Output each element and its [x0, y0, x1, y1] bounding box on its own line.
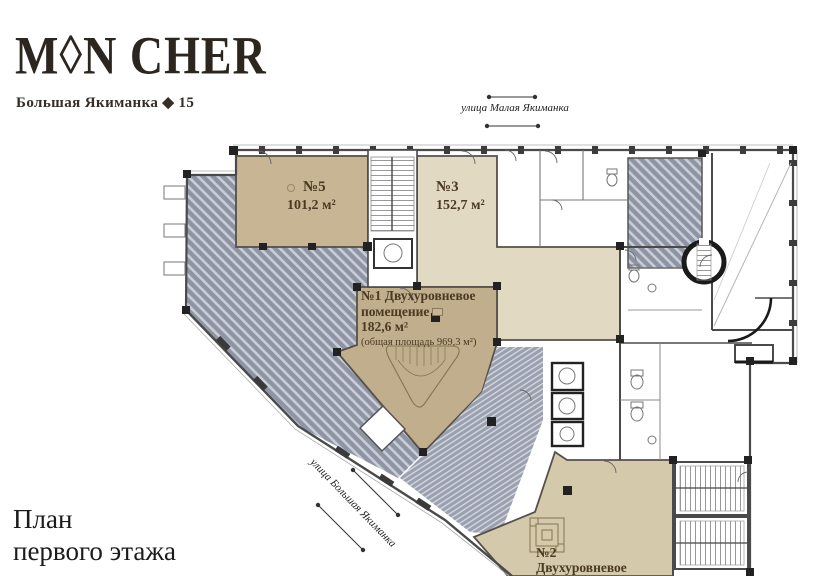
unit3-label: №3 152,7 м² [436, 177, 485, 215]
brand-logo: M◊N CHER [15, 24, 267, 87]
street-label-malaya-yakimanka: улица Малая Якиманка [430, 102, 600, 114]
brand-address: Большая Якиманка ◆ 15 [16, 93, 194, 112]
unit5-marker-icon [287, 184, 295, 192]
unit1-legend-icon [432, 308, 443, 316]
unit2-label: №2 Двухуровневое [536, 545, 627, 575]
page-title: План первого этажа [13, 503, 176, 568]
floor-plan-page: M◊N CHER Большая Якиманка ◆ 15 улица Мал… [0, 0, 820, 576]
unit1-label: №1 Двухуровневое помещение 182,6 м² (общ… [361, 288, 476, 350]
plan-zones [186, 156, 702, 576]
unit5-label: №5 101,2 м² [287, 177, 336, 215]
